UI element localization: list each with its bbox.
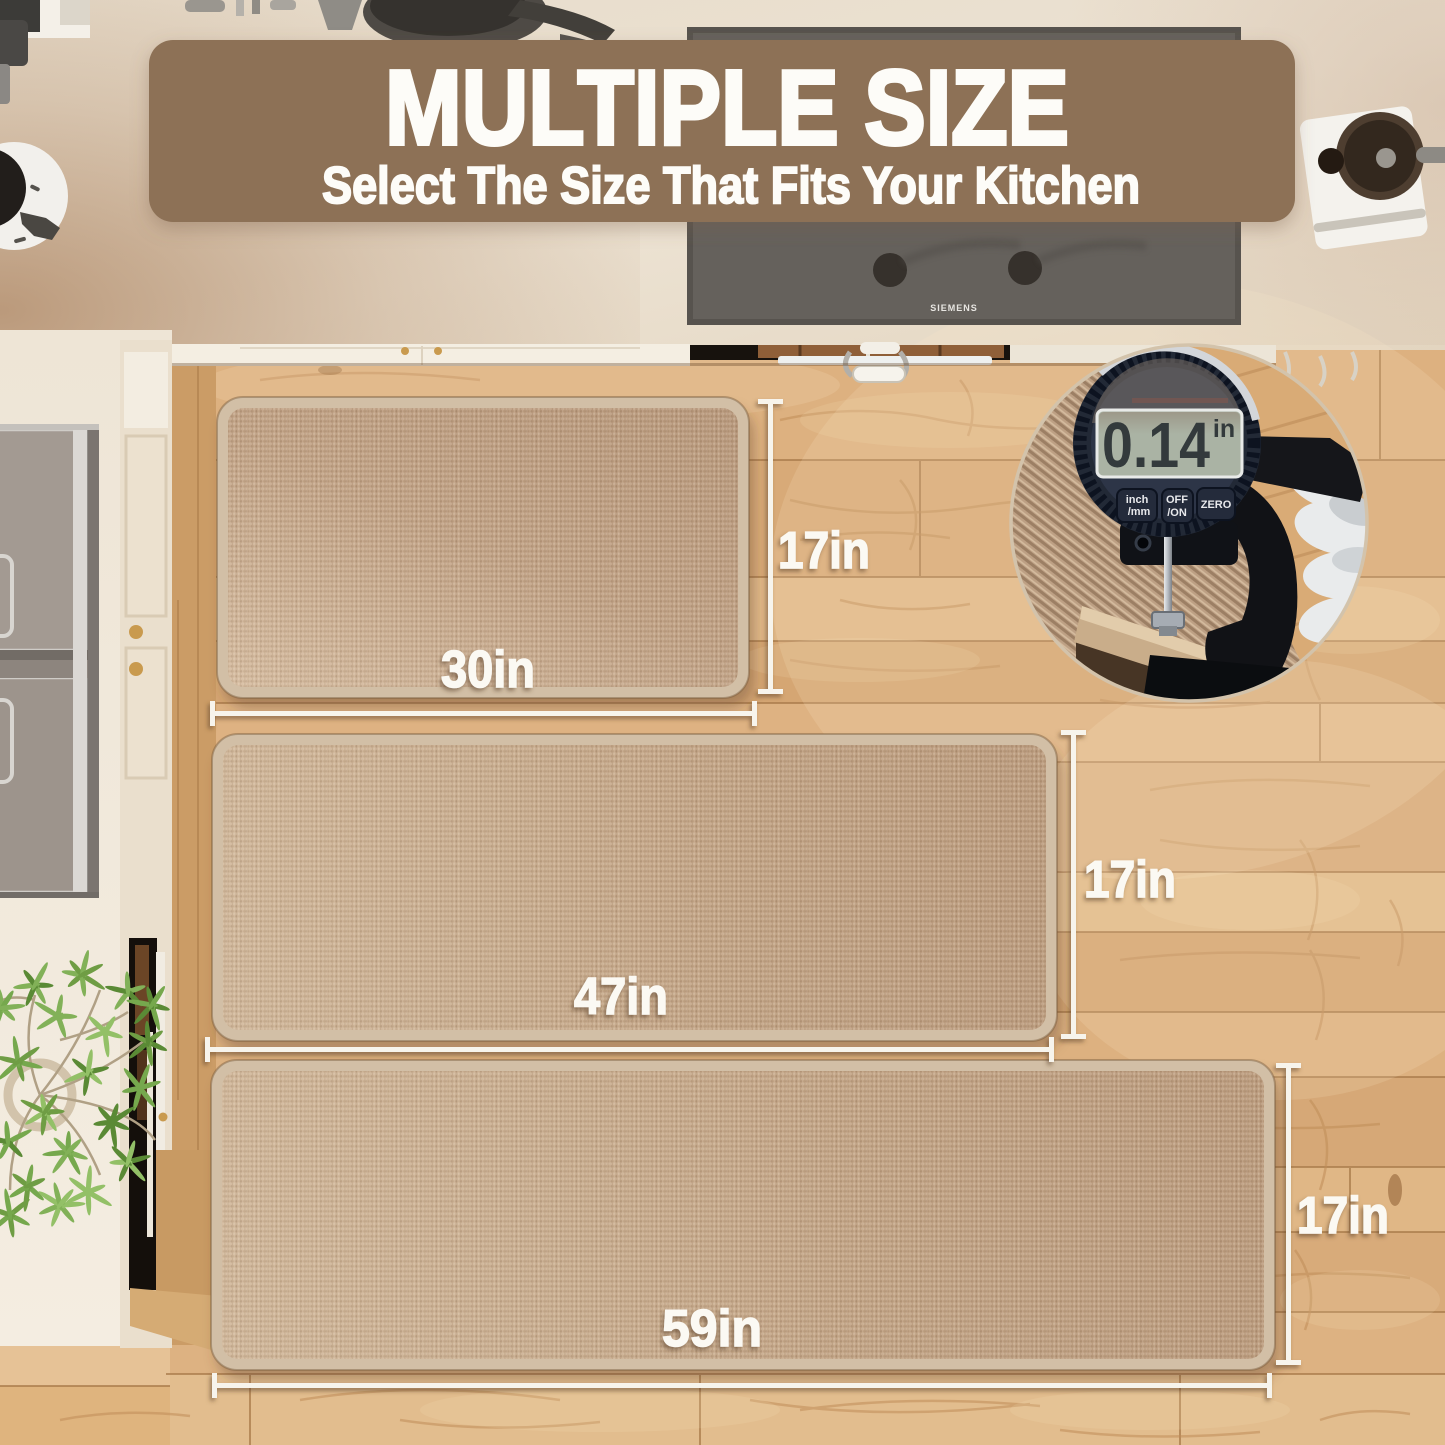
svg-text:SIEMENS: SIEMENS bbox=[930, 303, 978, 313]
svg-text:59in: 59in bbox=[662, 1300, 762, 1358]
svg-text:/ON: /ON bbox=[1167, 507, 1187, 519]
svg-text:17in: 17in bbox=[1297, 1187, 1389, 1245]
svg-text:inch: inch bbox=[1126, 494, 1149, 506]
svg-text:ZERO: ZERO bbox=[1201, 499, 1232, 511]
svg-text:OFF: OFF bbox=[1166, 494, 1188, 506]
svg-text:0.14: 0.14 bbox=[1102, 409, 1210, 481]
svg-text:/mm: /mm bbox=[1128, 506, 1151, 518]
svg-text:17in: 17in bbox=[1084, 851, 1176, 909]
svg-text:17in: 17in bbox=[778, 522, 870, 580]
svg-text:MULTIPLE SIZE: MULTIPLE SIZE bbox=[385, 49, 1069, 167]
svg-text:30in: 30in bbox=[441, 641, 535, 699]
svg-text:in: in bbox=[1213, 415, 1235, 443]
svg-text:Select The Size That Fits Your: Select The Size That Fits Your Kitchen bbox=[322, 157, 1140, 215]
svg-text:47in: 47in bbox=[574, 968, 668, 1026]
